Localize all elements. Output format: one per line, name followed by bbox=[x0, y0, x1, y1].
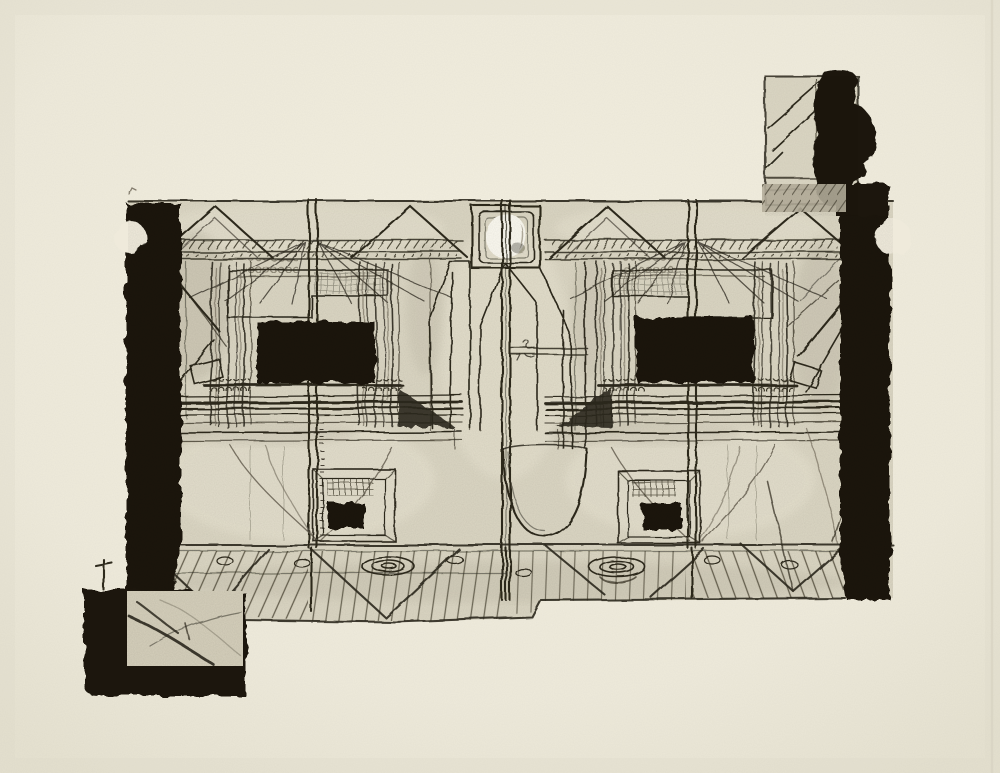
panel-grain bbox=[127, 591, 243, 666]
photograph-of-print: Black ink etching on cream paper: a mirr… bbox=[0, 0, 1000, 773]
plate-grain bbox=[128, 200, 893, 622]
bottom-left-collage-block bbox=[84, 590, 246, 696]
artwork-photo: Black ink etching on cream paper: a mirr… bbox=[0, 0, 1000, 773]
collage-grain bbox=[765, 76, 858, 216]
etching-plate bbox=[96, 187, 911, 622]
